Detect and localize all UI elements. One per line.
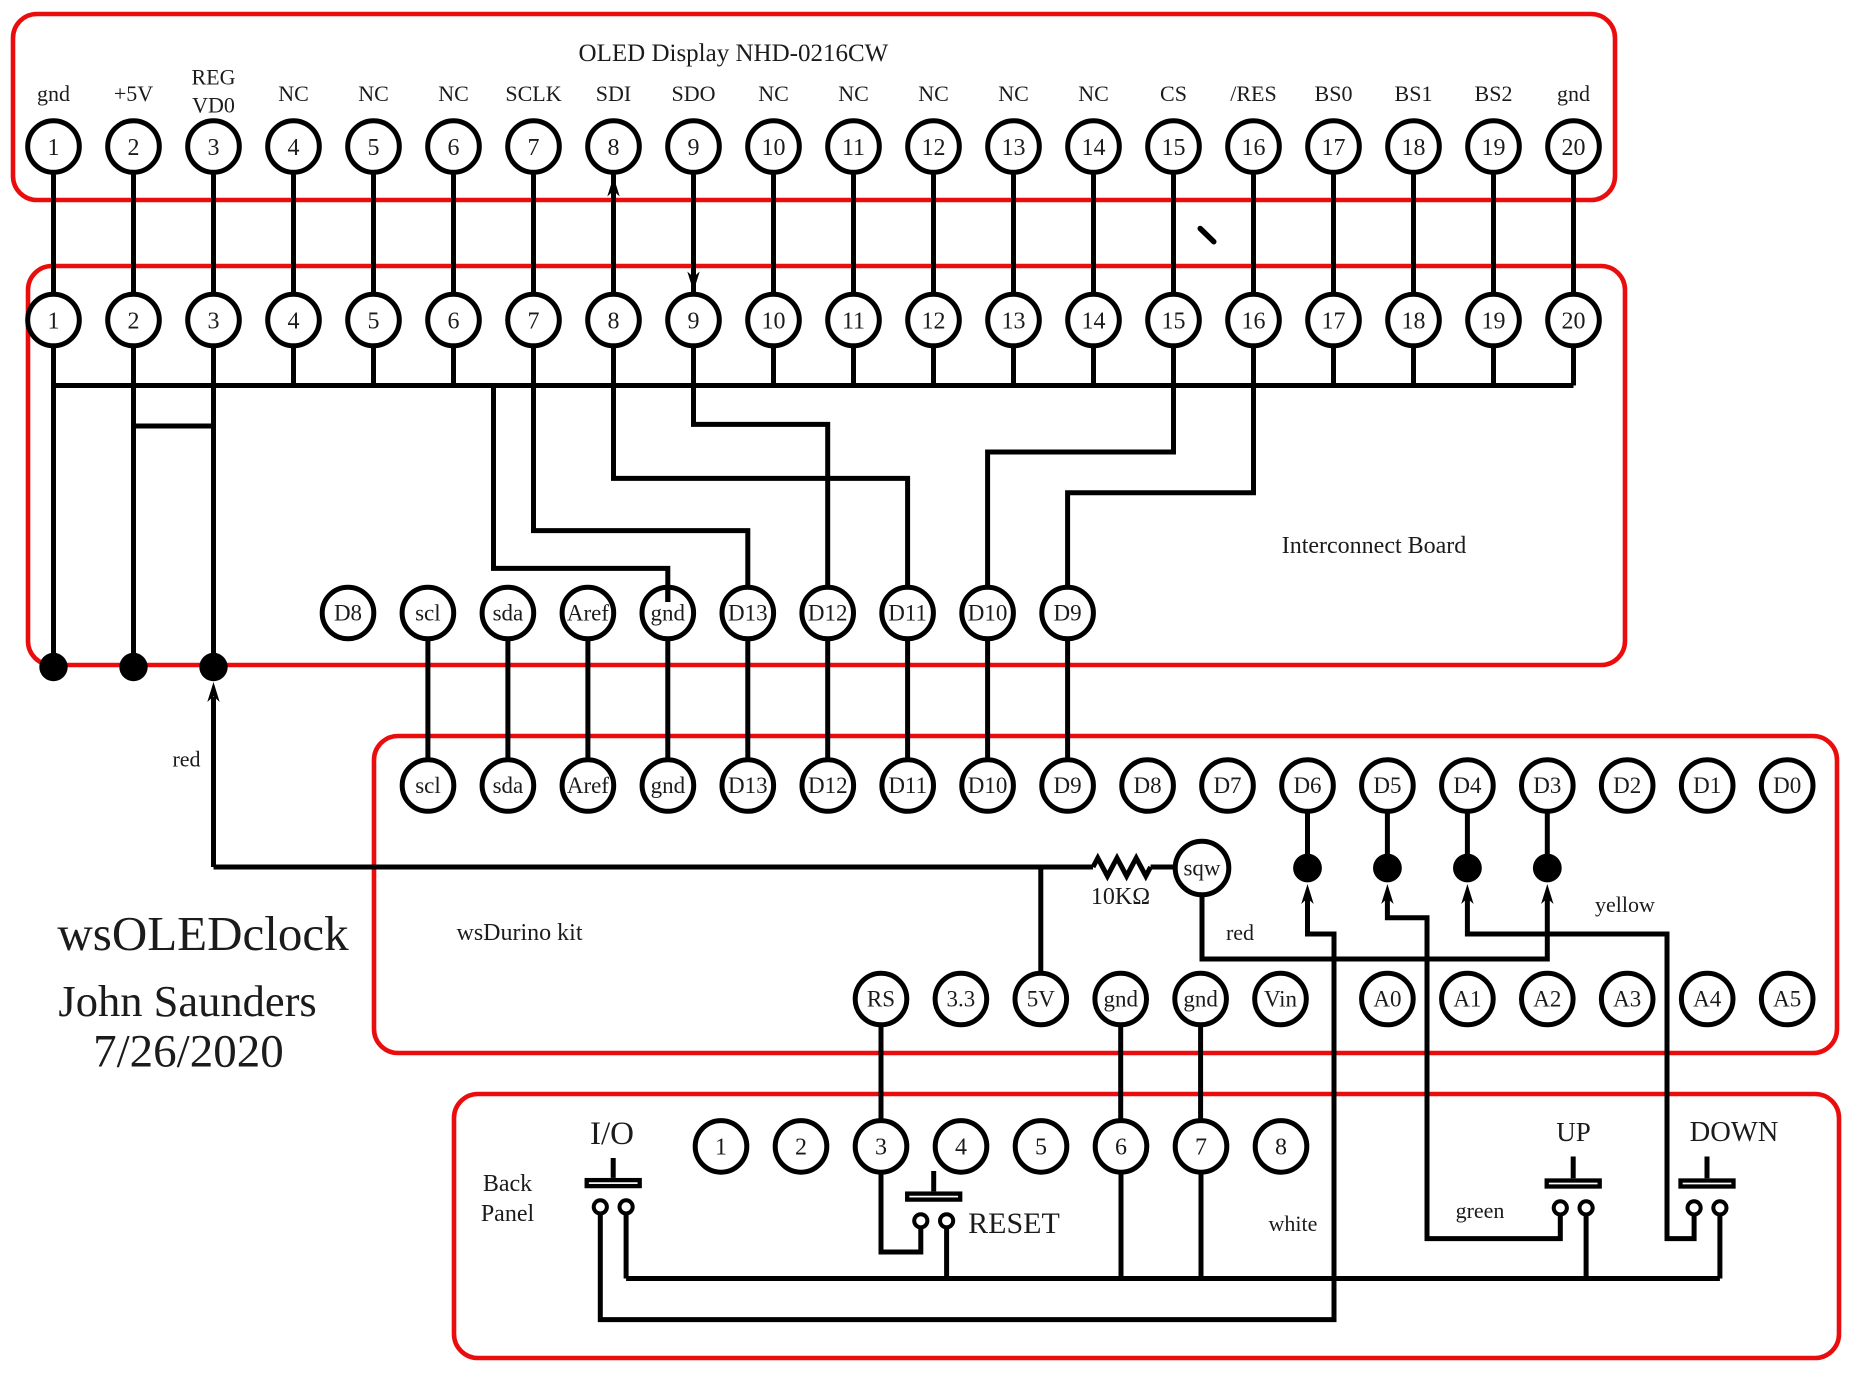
svg-text:gnd: gnd — [1183, 987, 1218, 1012]
svg-text:D10: D10 — [968, 601, 1008, 626]
svg-text:16: 16 — [1242, 135, 1266, 161]
svg-text:Vin: Vin — [1264, 987, 1298, 1012]
svg-text:14: 14 — [1082, 135, 1106, 161]
svg-text:13: 13 — [1002, 135, 1026, 161]
svg-text:Back: Back — [483, 1171, 532, 1197]
svg-text:sqw: sqw — [1183, 856, 1220, 881]
svg-text:Aref: Aref — [567, 773, 609, 798]
svg-text:RESET: RESET — [968, 1207, 1060, 1240]
svg-text:20: 20 — [1562, 308, 1586, 334]
svg-text:A1: A1 — [1453, 987, 1481, 1012]
svg-text:17: 17 — [1322, 135, 1346, 161]
svg-text:5V: 5V — [1027, 987, 1056, 1012]
svg-text:7: 7 — [1195, 1135, 1207, 1161]
svg-text:BS1: BS1 — [1395, 81, 1433, 106]
svg-text:+5V: +5V — [114, 81, 153, 106]
svg-text:11: 11 — [842, 308, 865, 334]
svg-text:OLED Display NHD-0216CW: OLED Display NHD-0216CW — [579, 40, 889, 67]
svg-text:1: 1 — [715, 1135, 727, 1161]
svg-text:2: 2 — [128, 135, 140, 161]
svg-text:D3: D3 — [1533, 773, 1561, 798]
svg-text:A4: A4 — [1693, 987, 1722, 1012]
svg-text:red: red — [1226, 920, 1254, 945]
svg-text:scl: scl — [415, 601, 441, 626]
svg-text:4: 4 — [288, 308, 300, 334]
svg-text:D11: D11 — [888, 601, 927, 626]
svg-text:NC: NC — [438, 81, 469, 106]
svg-text:green: green — [1456, 1198, 1505, 1223]
svg-text:SDO: SDO — [671, 81, 715, 106]
svg-text:NC: NC — [758, 81, 789, 106]
svg-text:9: 9 — [688, 135, 700, 161]
svg-text:BS0: BS0 — [1315, 81, 1353, 106]
svg-text:REG: REG — [192, 65, 236, 90]
svg-text:10: 10 — [762, 308, 786, 334]
svg-text:4: 4 — [288, 135, 300, 161]
svg-text:7: 7 — [528, 135, 540, 161]
svg-text:NC: NC — [838, 81, 869, 106]
svg-text:gnd: gnd — [1557, 81, 1590, 106]
svg-text:red: red — [172, 747, 200, 772]
svg-text:D12: D12 — [808, 601, 848, 626]
svg-text:A0: A0 — [1373, 987, 1401, 1012]
svg-text:VD0: VD0 — [192, 93, 235, 118]
svg-text:D13: D13 — [728, 773, 768, 798]
svg-text:4: 4 — [955, 1135, 967, 1161]
svg-text:A2: A2 — [1533, 987, 1561, 1012]
svg-text:D7: D7 — [1213, 773, 1241, 798]
svg-text:DOWN: DOWN — [1690, 1117, 1779, 1148]
svg-text:NC: NC — [918, 81, 949, 106]
svg-text:gnd: gnd — [37, 81, 70, 106]
svg-text:NC: NC — [358, 81, 389, 106]
svg-text:gnd: gnd — [651, 773, 686, 798]
svg-text:19: 19 — [1482, 308, 1506, 334]
svg-text:D5: D5 — [1373, 773, 1401, 798]
svg-text:sda: sda — [493, 601, 524, 626]
svg-text:6: 6 — [448, 308, 460, 334]
svg-text:19: 19 — [1482, 135, 1506, 161]
svg-text:10: 10 — [762, 135, 786, 161]
svg-text:BS2: BS2 — [1475, 81, 1513, 106]
svg-text:12: 12 — [922, 135, 946, 161]
svg-text:D2: D2 — [1613, 773, 1641, 798]
svg-text:SCLK: SCLK — [505, 81, 561, 106]
svg-text:3: 3 — [208, 135, 220, 161]
svg-text:D11: D11 — [888, 773, 927, 798]
svg-text:3.3: 3.3 — [947, 987, 976, 1012]
svg-text:SDI: SDI — [596, 81, 631, 106]
svg-text:6: 6 — [448, 135, 460, 161]
svg-text:RS: RS — [867, 987, 895, 1012]
svg-text:1: 1 — [48, 308, 60, 334]
svg-text:wsDurino kit: wsDurino kit — [457, 920, 583, 946]
svg-text:2: 2 — [795, 1135, 807, 1161]
svg-text:13: 13 — [1002, 308, 1026, 334]
svg-text:3: 3 — [208, 308, 220, 334]
svg-text:Interconnect Board: Interconnect Board — [1282, 533, 1467, 559]
svg-text:11: 11 — [842, 135, 865, 161]
svg-text:A3: A3 — [1613, 987, 1641, 1012]
svg-text:A5: A5 — [1773, 987, 1801, 1012]
svg-text:16: 16 — [1242, 308, 1266, 334]
svg-text:/RES: /RES — [1230, 81, 1276, 106]
svg-text:sda: sda — [493, 773, 524, 798]
svg-text:UP: UP — [1556, 1117, 1591, 1147]
svg-text:gnd: gnd — [1103, 987, 1138, 1012]
svg-text:gnd: gnd — [651, 601, 686, 626]
svg-text:D6: D6 — [1293, 773, 1321, 798]
svg-text:D9: D9 — [1054, 773, 1082, 798]
svg-text:5: 5 — [1035, 1135, 1047, 1161]
svg-text:CS: CS — [1160, 81, 1187, 106]
svg-text:2: 2 — [128, 308, 140, 334]
svg-text:6: 6 — [1115, 1135, 1127, 1161]
svg-text:10KΩ: 10KΩ — [1091, 884, 1150, 910]
svg-text:18: 18 — [1402, 135, 1426, 161]
svg-text:white: white — [1269, 1211, 1318, 1236]
svg-text:D12: D12 — [808, 773, 848, 798]
svg-text:17: 17 — [1322, 308, 1346, 334]
svg-text:NC: NC — [1078, 81, 1109, 106]
svg-text:D0: D0 — [1773, 773, 1801, 798]
svg-text:3: 3 — [875, 1135, 887, 1161]
svg-text:8: 8 — [608, 308, 620, 334]
svg-text:NC: NC — [278, 81, 309, 106]
svg-text:D1: D1 — [1693, 773, 1721, 798]
svg-text:5: 5 — [368, 135, 380, 161]
svg-text:wsOLEDclock: wsOLEDclock — [57, 906, 349, 961]
svg-text:9: 9 — [688, 308, 700, 334]
svg-text:15: 15 — [1162, 135, 1186, 161]
svg-text:D13: D13 — [728, 601, 768, 626]
svg-text:Panel: Panel — [481, 1201, 535, 1227]
svg-text:8: 8 — [608, 135, 620, 161]
svg-text:D8: D8 — [1134, 773, 1162, 798]
svg-text:18: 18 — [1402, 308, 1426, 334]
svg-text:14: 14 — [1082, 308, 1106, 334]
svg-text:15: 15 — [1162, 308, 1186, 334]
svg-text:8: 8 — [1275, 1135, 1287, 1161]
svg-text:12: 12 — [922, 308, 946, 334]
svg-text:D4: D4 — [1453, 773, 1482, 798]
svg-text:Aref: Aref — [567, 601, 609, 626]
svg-text:1: 1 — [48, 135, 60, 161]
svg-text:D10: D10 — [968, 773, 1008, 798]
svg-text:20: 20 — [1562, 135, 1586, 161]
svg-text:I/O: I/O — [590, 1116, 634, 1152]
svg-text:John Saunders: John Saunders — [58, 976, 316, 1026]
svg-text:7/26/2020: 7/26/2020 — [93, 1026, 284, 1078]
svg-text:5: 5 — [368, 308, 380, 334]
svg-text:NC: NC — [998, 81, 1029, 106]
svg-text:D8: D8 — [334, 601, 362, 626]
svg-text:D9: D9 — [1054, 601, 1082, 626]
svg-text:7: 7 — [528, 308, 540, 334]
svg-text:scl: scl — [415, 773, 441, 798]
svg-text:yellow: yellow — [1595, 892, 1655, 917]
